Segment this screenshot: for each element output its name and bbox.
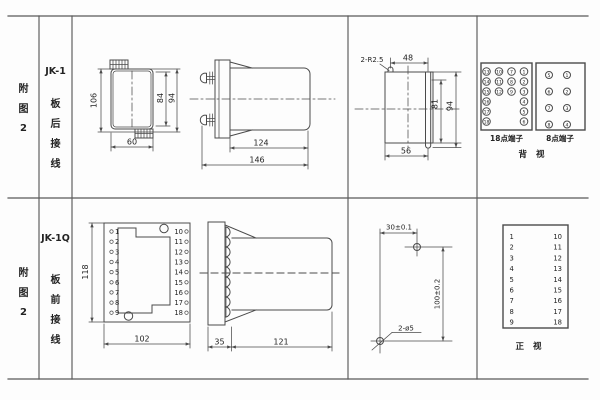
svg-text:14: 14 — [484, 79, 490, 85]
svg-text:11: 11 — [496, 79, 502, 85]
svg-text:1: 1 — [566, 73, 569, 79]
dim-94-cutout: 94 — [446, 101, 455, 111]
dim-84: 84 — [156, 93, 165, 103]
figure-side-view-rear: 124 146 — [190, 60, 335, 169]
svg-text:3: 3 — [523, 89, 526, 95]
svg-text:17: 17 — [484, 109, 490, 115]
figure-char: 图 — [19, 287, 29, 299]
row1-model-label: JK-1 板 后 接 线 — [44, 66, 66, 170]
inner-module-outline — [118, 228, 170, 313]
dim-60: 60 — [127, 138, 137, 147]
svg-text:4: 4 — [510, 265, 514, 273]
svg-text:10: 10 — [553, 233, 562, 241]
dim-30: 30±0.1 — [386, 224, 412, 232]
svg-text:2: 2 — [566, 89, 569, 95]
model-name: JK-1 — [44, 66, 66, 77]
svg-text:16: 16 — [553, 297, 562, 305]
figure-drill-pattern: 30±0.1 100±0.2 2-ø5 — [371, 224, 452, 354]
terminal-table-right: 10 11 12 13 14 15 16 17 18 — [553, 233, 562, 327]
figure-char: 2 — [20, 123, 27, 134]
dim-118: 118 — [81, 264, 90, 279]
svg-text:7: 7 — [115, 289, 119, 297]
dim-106: 106 — [90, 93, 99, 108]
svg-text:7: 7 — [548, 106, 551, 112]
svg-text:16: 16 — [484, 99, 490, 105]
svg-text:10: 10 — [174, 228, 183, 236]
figure-terminals-rear: 13 10 7 1 14 11 8 2 15 12 9 3 16 4 17 5 … — [481, 63, 585, 160]
screw-block-bottom — [135, 129, 153, 138]
svg-text:11: 11 — [553, 244, 562, 252]
svg-text:13: 13 — [174, 259, 183, 267]
model-char: 接 — [51, 137, 61, 150]
svg-text:8: 8 — [548, 122, 551, 128]
svg-text:1: 1 — [523, 69, 526, 75]
dim-100: 100±0.2 — [434, 279, 442, 309]
svg-text:5: 5 — [523, 109, 526, 115]
svg-text:6: 6 — [523, 119, 526, 125]
rear-view-label: 背 视 — [519, 149, 548, 160]
svg-text:13: 13 — [484, 69, 490, 75]
svg-text:7: 7 — [510, 69, 513, 75]
dim-124: 124 — [253, 139, 268, 148]
figure-char: 2 — [20, 307, 27, 318]
terminal-18-label: 18点端子 — [490, 133, 523, 143]
dim-94: 94 — [168, 93, 177, 103]
svg-text:17: 17 — [553, 308, 562, 316]
model-char: 接 — [51, 313, 61, 326]
svg-text:18: 18 — [174, 309, 183, 317]
terminal-8-pins: 5 1 6 2 7 3 8 4 — [546, 72, 571, 129]
figure-char: 图 — [19, 103, 29, 115]
svg-text:7: 7 — [510, 297, 514, 305]
dim-146: 146 — [249, 156, 264, 165]
terminal-bumps — [226, 227, 230, 317]
dim-56: 56 — [401, 147, 411, 156]
svg-text:12: 12 — [553, 254, 562, 262]
svg-text:8: 8 — [510, 308, 514, 316]
svg-text:13: 13 — [553, 265, 562, 273]
terminal-table-left: 1 2 3 4 5 6 7 8 9 — [510, 233, 514, 327]
row2-model-label: JK-1Q 板 前 接 线 — [40, 233, 70, 346]
svg-text:8: 8 — [115, 299, 119, 307]
svg-text:1: 1 — [115, 228, 119, 236]
screw-top — [200, 72, 215, 84]
svg-text:2: 2 — [523, 79, 526, 85]
dim-35: 35 — [214, 338, 224, 347]
front-right-terminals: 10 11 12 13 14 15 16 17 18 — [174, 228, 188, 317]
svg-text:6: 6 — [548, 89, 551, 95]
svg-text:14: 14 — [553, 276, 562, 284]
figure-front-view: 1 2 3 4 5 6 7 8 9 10 11 12 13 14 15 16 1… — [81, 223, 190, 348]
svg-text:4: 4 — [566, 122, 569, 128]
svg-text:15: 15 — [553, 287, 562, 295]
screw-bottom — [200, 114, 215, 126]
svg-text:15: 15 — [484, 89, 490, 95]
svg-text:5: 5 — [510, 276, 514, 284]
svg-text:1: 1 — [510, 233, 514, 241]
svg-text:5: 5 — [548, 73, 551, 79]
terminal-8-label: 8点端子 — [546, 133, 574, 143]
dim-2-r2.5: 2-R2.5 — [361, 56, 384, 64]
svg-text:14: 14 — [174, 269, 183, 277]
technical-drawing: 附 图 2 JK-1 板 后 接 线 106 84 94 60 — [0, 0, 600, 400]
model-char: 后 — [51, 117, 61, 130]
model-char: 线 — [51, 157, 61, 170]
svg-text:12: 12 — [174, 248, 183, 256]
front-view-label: 正 视 — [516, 341, 545, 352]
row1-figure-label: 附 图 2 — [19, 82, 29, 134]
svg-text:9: 9 — [115, 309, 119, 317]
svg-text:18: 18 — [553, 319, 562, 327]
svg-text:5: 5 — [115, 269, 119, 277]
svg-text:8: 8 — [510, 79, 513, 85]
figure-char: 附 — [19, 82, 29, 95]
svg-text:18: 18 — [484, 119, 490, 125]
mount-hole-top — [160, 224, 168, 232]
svg-text:6: 6 — [115, 279, 119, 287]
svg-text:12: 12 — [496, 89, 502, 95]
front-left-terminals: 1 2 3 4 5 6 7 8 9 — [110, 228, 120, 317]
svg-text:15: 15 — [174, 279, 183, 287]
figure-terminal-table: 1 2 3 4 5 6 7 8 9 10 11 12 13 14 15 16 1… — [503, 225, 568, 352]
svg-text:6: 6 — [510, 287, 514, 295]
svg-text:3: 3 — [115, 248, 119, 256]
svg-text:2: 2 — [115, 238, 119, 246]
dim-2-d5: 2-ø5 — [398, 325, 414, 333]
dim-81: 81 — [431, 99, 440, 109]
screw-block-top — [110, 60, 128, 69]
figure-panel-cutout-rear: 48 2-R2.5 81 94 56 — [355, 54, 462, 161]
dim-102: 102 — [134, 335, 149, 344]
dim-48: 48 — [403, 54, 413, 63]
svg-text:4: 4 — [523, 99, 526, 105]
terminal-8-box — [536, 63, 585, 130]
model-char: 板 — [51, 273, 62, 286]
model-name: JK-1Q — [40, 233, 70, 244]
figure-side-view-front: 35 121 — [200, 222, 340, 351]
svg-text:2: 2 — [510, 244, 514, 252]
svg-text:4: 4 — [115, 259, 119, 267]
model-char: 板 — [51, 97, 62, 110]
terminal-18-pins: 13 10 7 1 14 11 8 2 15 12 9 3 16 4 17 5 … — [483, 68, 528, 126]
model-char: 前 — [51, 293, 61, 306]
model-char: 线 — [51, 333, 61, 346]
svg-text:3: 3 — [510, 254, 514, 262]
dim-121: 121 — [273, 338, 288, 347]
svg-text:16: 16 — [174, 289, 183, 297]
figure-char: 附 — [19, 266, 29, 279]
svg-text:17: 17 — [174, 299, 183, 307]
figure-rear-case-view: 106 84 94 60 — [90, 60, 181, 151]
svg-text:9: 9 — [510, 319, 514, 327]
drawing-sheet: 附 图 2 JK-1 板 后 接 线 106 84 94 60 — [0, 0, 600, 400]
svg-text:9: 9 — [510, 89, 513, 95]
svg-text:3: 3 — [566, 106, 569, 112]
svg-text:10: 10 — [496, 69, 502, 75]
row2-figure-label: 附 图 2 — [19, 266, 29, 318]
svg-text:11: 11 — [174, 238, 183, 246]
